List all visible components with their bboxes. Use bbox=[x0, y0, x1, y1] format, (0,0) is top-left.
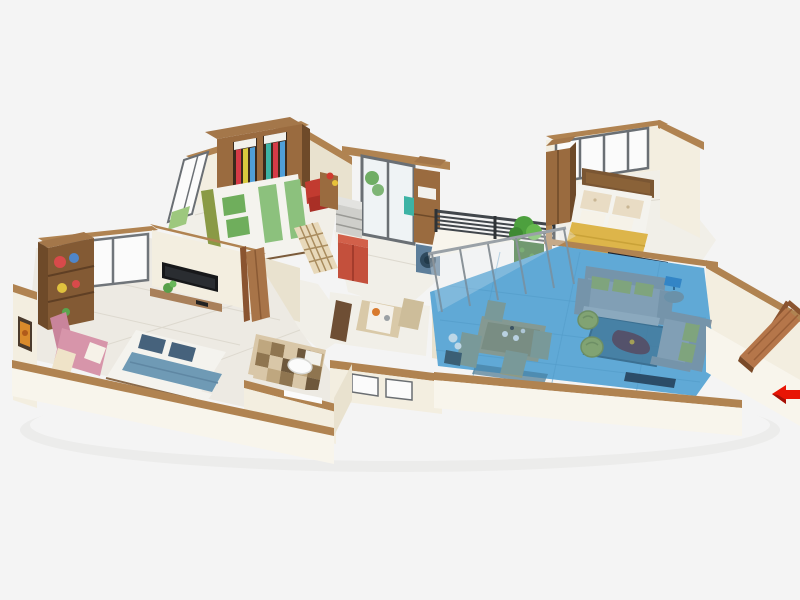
frame-art-swirl bbox=[22, 330, 28, 336]
pillow-pattern-dot bbox=[593, 198, 596, 201]
clothes-blue bbox=[280, 141, 285, 179]
shelf-item-blue bbox=[69, 253, 79, 263]
refrigerator-red bbox=[338, 234, 368, 284]
clothes-teal bbox=[266, 143, 271, 181]
clothes-yellow bbox=[243, 148, 248, 186]
teal-towel bbox=[404, 196, 414, 216]
ball-yellow bbox=[332, 180, 338, 186]
floorplan-canvas bbox=[0, 0, 800, 600]
plant-behind-glass bbox=[365, 171, 379, 185]
flower-red bbox=[327, 173, 334, 180]
glass-sliding-door bbox=[362, 156, 414, 244]
nook-front-window bbox=[352, 374, 378, 396]
plant-behind-glass bbox=[372, 184, 384, 196]
room-dining-nook bbox=[326, 292, 430, 356]
counter-with-drawers bbox=[336, 196, 362, 238]
plate-orange bbox=[372, 308, 380, 316]
wardrobe-side bbox=[302, 124, 310, 191]
shelf-item-yellow bbox=[57, 283, 67, 293]
ledge-flower-pot bbox=[320, 172, 338, 210]
shelf-item-red bbox=[54, 256, 66, 268]
clothes-blue bbox=[250, 147, 255, 185]
picture-frame bbox=[18, 316, 32, 352]
desk-plant bbox=[170, 281, 177, 288]
nook-front-window bbox=[386, 379, 412, 400]
floorplan-render bbox=[0, 0, 800, 600]
bowl-gray bbox=[384, 315, 390, 321]
counter-front bbox=[336, 204, 362, 238]
clothes-red bbox=[273, 142, 278, 180]
bookshelf-side bbox=[38, 242, 48, 330]
pillow-pattern-dot bbox=[626, 205, 629, 208]
shelf-item-red bbox=[72, 280, 80, 288]
clothes-red bbox=[236, 149, 241, 187]
